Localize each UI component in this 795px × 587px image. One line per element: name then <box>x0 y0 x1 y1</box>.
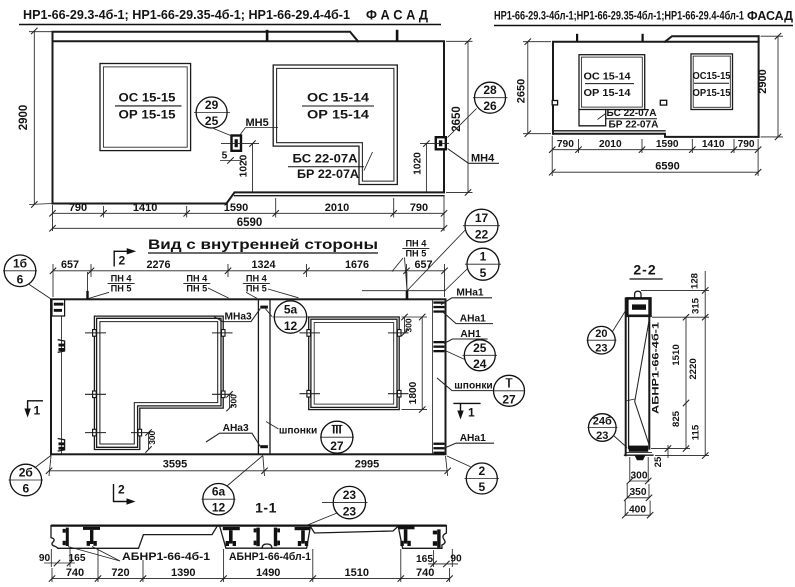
svg-text:МНа3: МНа3 <box>225 312 253 323</box>
svg-text:1390: 1390 <box>171 567 195 579</box>
svg-text:ПН 4: ПН 4 <box>246 273 268 283</box>
svg-text:Ф А С А Д: Ф А С А Д <box>366 7 428 23</box>
svg-text:1510: 1510 <box>345 567 369 579</box>
svg-text:2-2: 2-2 <box>633 262 656 278</box>
svg-text:ФАСАД: ФАСАД <box>747 8 794 23</box>
svg-text:АНа1: АНа1 <box>460 313 486 324</box>
svg-text:740: 740 <box>66 567 84 579</box>
svg-text:5: 5 <box>222 151 228 162</box>
svg-text:АБНР1-66-4б-1: АБНР1-66-4б-1 <box>651 321 662 414</box>
svg-text:БР 22-07А: БР 22-07А <box>297 169 359 181</box>
svg-text:ПН 4: ПН 4 <box>186 273 208 283</box>
svg-text:БР 22-07А: БР 22-07А <box>609 120 660 131</box>
svg-text:27: 27 <box>330 439 344 453</box>
svg-text:3595: 3595 <box>163 459 187 471</box>
svg-text:300: 300 <box>404 318 414 332</box>
svg-text:ОС 15-14: ОС 15-14 <box>307 91 369 105</box>
svg-text:ПН 5: ПН 5 <box>111 284 132 294</box>
svg-text:5: 5 <box>480 266 487 280</box>
svg-text:1: 1 <box>480 250 487 264</box>
svg-text:2995: 2995 <box>355 459 379 471</box>
svg-text:1800: 1800 <box>408 381 419 404</box>
svg-text:АНа1: АНа1 <box>460 433 486 444</box>
svg-text:1-1: 1-1 <box>255 500 277 516</box>
svg-text:6: 6 <box>22 482 29 496</box>
svg-text:720: 720 <box>111 567 129 579</box>
svg-text:24: 24 <box>473 357 487 371</box>
svg-text:2: 2 <box>119 254 126 268</box>
svg-text:17: 17 <box>475 211 489 225</box>
svg-text:300: 300 <box>631 471 648 482</box>
svg-text:ОР 15-14: ОР 15-14 <box>584 88 631 99</box>
svg-text:2650: 2650 <box>516 79 528 103</box>
svg-text:1676: 1676 <box>345 259 369 271</box>
svg-text:1410: 1410 <box>702 139 725 150</box>
svg-text:2276: 2276 <box>146 259 170 271</box>
svg-text:128: 128 <box>690 272 701 289</box>
svg-text:790: 790 <box>69 202 87 214</box>
svg-text:1б: 1б <box>13 256 27 270</box>
svg-text:ПН 5: ПН 5 <box>405 249 426 259</box>
svg-text:790: 790 <box>738 139 755 150</box>
svg-text:2220: 2220 <box>688 358 699 379</box>
svg-text:26: 26 <box>483 99 497 113</box>
svg-text:ОС 15-14: ОС 15-14 <box>584 72 631 83</box>
svg-text:АБНР1-66-4б-1: АБНР1-66-4б-1 <box>122 551 210 563</box>
svg-text:I: I <box>507 378 510 390</box>
svg-text:1490: 1490 <box>256 567 280 579</box>
svg-text:ПН 4: ПН 4 <box>405 239 427 249</box>
svg-text:6590: 6590 <box>655 161 679 173</box>
svg-text:6: 6 <box>17 272 24 286</box>
svg-text:ОС 15-15: ОС 15-15 <box>119 91 176 105</box>
svg-text:2650: 2650 <box>451 106 463 132</box>
svg-text:90: 90 <box>39 553 51 564</box>
svg-text:ПН 4: ПН 4 <box>111 273 133 283</box>
svg-text:90: 90 <box>450 554 462 565</box>
svg-text:23: 23 <box>595 343 607 355</box>
svg-text:25: 25 <box>205 114 219 128</box>
svg-text:350: 350 <box>630 487 647 498</box>
svg-text:ОС15-15: ОС15-15 <box>693 71 731 82</box>
svg-text:НР1-66-29.3-4б-1; НР1-66-29.35: НР1-66-29.3-4б-1; НР1-66-29.35-4б-1; НР1… <box>23 7 350 22</box>
svg-text:1324: 1324 <box>251 259 275 271</box>
svg-text:шпонки: шпонки <box>279 426 317 437</box>
svg-text:1590: 1590 <box>656 139 679 150</box>
svg-text:300: 300 <box>229 394 239 408</box>
svg-text:ПН 5: ПН 5 <box>246 284 267 294</box>
svg-text:шпонки: шпонки <box>454 381 492 392</box>
svg-text:НР1-66-29.3-4бл-1;НР1-66-29.35: НР1-66-29.3-4бл-1;НР1-66-29.35-4бл-1;НР1… <box>494 11 744 23</box>
svg-text:28: 28 <box>483 83 497 97</box>
svg-text:МНа1: МНа1 <box>456 288 484 299</box>
svg-text:23: 23 <box>343 488 357 502</box>
svg-text:115: 115 <box>691 424 702 440</box>
svg-text:657: 657 <box>414 259 432 271</box>
svg-text:III: III <box>332 425 342 437</box>
svg-text:6а: 6а <box>212 485 226 499</box>
svg-text:1590: 1590 <box>224 202 248 214</box>
svg-text:12: 12 <box>284 319 298 333</box>
svg-text:ПН 5: ПН 5 <box>186 284 207 294</box>
svg-text:20: 20 <box>595 328 607 340</box>
svg-text:825: 825 <box>671 410 682 427</box>
svg-text:ОР15-15: ОР15-15 <box>693 88 731 99</box>
svg-text:6590: 6590 <box>237 217 263 229</box>
svg-text:1510: 1510 <box>671 344 682 365</box>
svg-text:МН4: МН4 <box>471 153 495 165</box>
svg-text:АНа3: АНа3 <box>223 423 249 434</box>
svg-text:АБНР1-66-4бл-1: АБНР1-66-4бл-1 <box>229 551 311 563</box>
svg-text:790: 790 <box>410 202 428 214</box>
svg-text:5: 5 <box>478 480 485 494</box>
svg-text:790: 790 <box>557 139 574 150</box>
svg-text:2: 2 <box>118 483 125 497</box>
svg-text:657: 657 <box>61 259 79 271</box>
svg-text:300: 300 <box>147 430 157 444</box>
svg-text:22: 22 <box>475 228 489 242</box>
svg-text:12: 12 <box>212 501 226 515</box>
svg-text:5а: 5а <box>284 303 298 317</box>
svg-text:2010: 2010 <box>599 139 622 150</box>
svg-text:23: 23 <box>596 430 608 442</box>
svg-text:1: 1 <box>34 404 41 418</box>
svg-text:1410: 1410 <box>133 202 157 214</box>
svg-text:1: 1 <box>468 406 475 420</box>
svg-text:2: 2 <box>478 464 485 478</box>
svg-text:ОР 15-14: ОР 15-14 <box>307 108 369 122</box>
svg-text:165: 165 <box>69 553 86 564</box>
svg-text:БС 22-07А: БС 22-07А <box>607 108 658 119</box>
svg-text:2б: 2б <box>19 466 33 480</box>
svg-text:2900: 2900 <box>18 105 30 131</box>
svg-text:2900: 2900 <box>757 69 769 93</box>
svg-text:ОР 15-15: ОР 15-15 <box>119 108 176 122</box>
svg-text:23: 23 <box>343 504 357 518</box>
svg-text:740: 740 <box>416 567 434 579</box>
svg-text:1020: 1020 <box>413 152 424 175</box>
svg-text:25: 25 <box>473 341 487 355</box>
svg-text:2010: 2010 <box>325 202 349 214</box>
svg-text:Вид с внутренней стороны: Вид с внутренней стороны <box>148 237 378 252</box>
svg-text:400: 400 <box>629 505 646 516</box>
svg-text:БС 22-07А: БС 22-07А <box>293 154 358 166</box>
svg-text:24б: 24б <box>593 415 612 427</box>
svg-text:25: 25 <box>653 456 664 467</box>
svg-text:АН1: АН1 <box>460 329 481 340</box>
svg-text:29: 29 <box>205 98 219 112</box>
svg-text:27: 27 <box>502 393 516 407</box>
svg-text:315: 315 <box>691 297 702 314</box>
svg-text:1020: 1020 <box>239 154 250 177</box>
svg-text:165: 165 <box>416 554 433 565</box>
